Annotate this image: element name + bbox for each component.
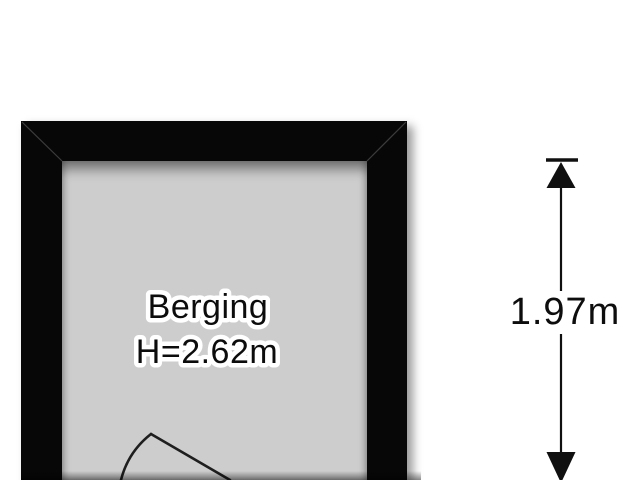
room-label: Berging H=2.62m [136,288,278,371]
wall-miter-top-right [367,122,406,161]
room-name-label: Berging [148,288,269,326]
door-swing-arc [121,434,151,480]
dimension-arrow-up-icon [547,162,576,188]
floorplan-canvas: Berging H=2.62m 1.97m [0,0,640,480]
door-leaf-line [151,434,230,480]
dimension-arrow-down-icon [547,452,576,480]
room-height-label: H=2.62m [136,333,278,371]
dimension-value-label: 1.97m [506,291,625,333]
plan-linework: Berging H=2.62m [0,0,640,480]
door-swing-icon [121,434,230,480]
wall-miter-top-left [22,122,62,161]
